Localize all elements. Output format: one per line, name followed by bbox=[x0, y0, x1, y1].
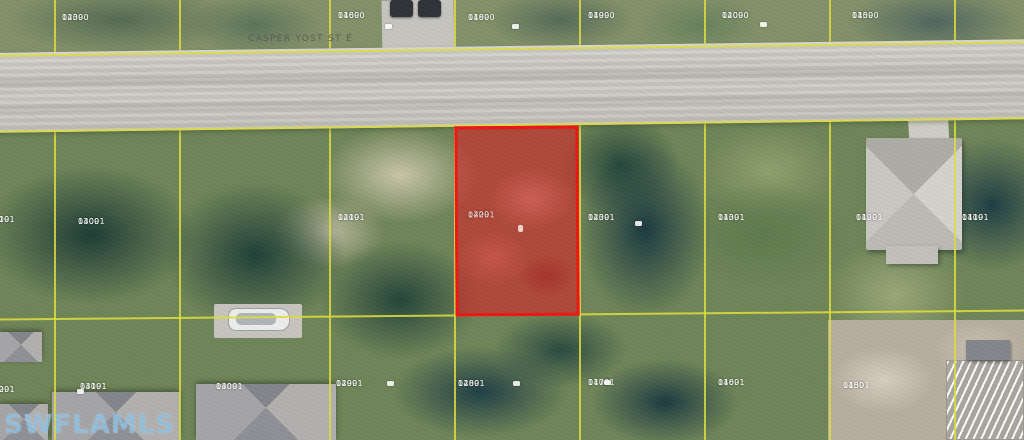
marker-dot bbox=[77, 389, 84, 394]
marker-dot bbox=[513, 381, 520, 386]
house-roof-south-2 bbox=[196, 384, 336, 440]
storage-container bbox=[966, 340, 1010, 360]
marker-dot bbox=[512, 24, 519, 29]
aerial-map: CASPER YOST ST E 14091 0220 140900230140… bbox=[0, 0, 1024, 440]
marker-dot bbox=[635, 221, 642, 226]
house-roof-east-wing bbox=[886, 246, 938, 264]
house-under-construction-trusses bbox=[946, 360, 1024, 440]
subject-parcel-lot: 0220 bbox=[468, 211, 490, 220]
boat-hull bbox=[236, 313, 276, 325]
marker-dot bbox=[385, 24, 392, 29]
marker-dot bbox=[604, 380, 611, 385]
mls-watermark: SWFLAMLS bbox=[4, 410, 175, 440]
vehicle bbox=[390, 0, 413, 17]
marker-dot bbox=[387, 381, 394, 386]
highlighted-subject-parcel: 14091 0220 bbox=[454, 126, 579, 317]
street-name-label: CASPER YOST ST E bbox=[248, 34, 353, 44]
parcel-center-marker bbox=[518, 225, 523, 232]
house-roof-east bbox=[866, 138, 962, 250]
vehicle bbox=[418, 0, 441, 17]
house-roof-southwest-edge bbox=[0, 332, 42, 362]
marker-dot bbox=[760, 22, 767, 27]
